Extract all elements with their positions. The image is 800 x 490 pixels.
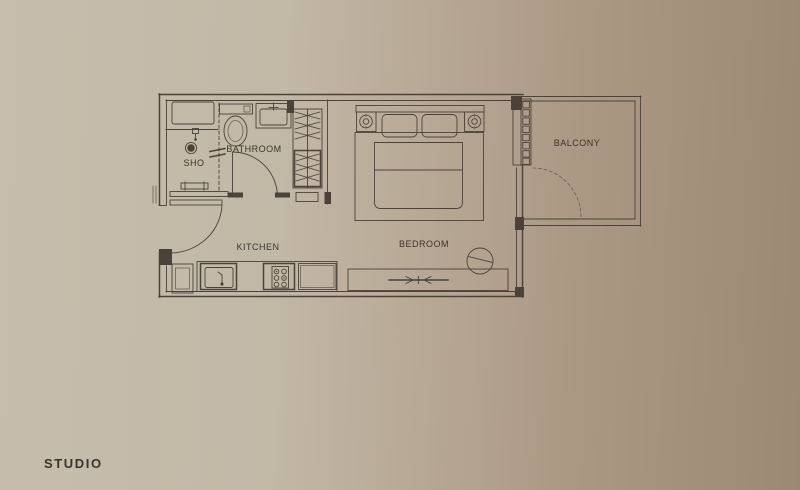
desk — [348, 269, 508, 291]
entry-door — [170, 200, 222, 253]
lamp-icon — [468, 115, 481, 128]
washbasin-icon — [256, 103, 291, 128]
bedroom: BEDROOM — [348, 106, 508, 291]
toilet-icon — [220, 104, 253, 146]
nightstand-right — [465, 112, 485, 132]
wardrobe-shelf — [296, 193, 318, 202]
wall-pier — [325, 192, 332, 204]
floorplan-drawing: SHO BATHROOM — [0, 0, 800, 490]
pillow — [382, 115, 417, 138]
entry-wall-pier — [159, 249, 172, 265]
pillow — [422, 115, 457, 138]
room-label-kitchen: KITCHEN — [236, 242, 279, 252]
door-swing-icon — [170, 203, 222, 253]
page-background: SHO BATHROOM — [0, 0, 800, 490]
wall-pier — [515, 287, 524, 297]
counter-cabinet — [299, 264, 337, 290]
room-label-bathroom: BATHROOM — [226, 144, 281, 154]
headboard — [356, 106, 484, 113]
door-swing-icon — [533, 168, 581, 218]
kitchen-counter — [197, 262, 337, 292]
stove-burners-icon — [264, 264, 295, 290]
shower-wall — [170, 192, 228, 197]
entry-door-leaf — [170, 200, 222, 205]
kitchen-sink-icon — [201, 264, 237, 290]
duvet — [375, 143, 463, 209]
wardrobe — [293, 100, 331, 204]
balcony: BALCONY — [522, 96, 641, 226]
chair-icon — [467, 248, 493, 274]
bathroom: BATHROOM — [210, 103, 291, 198]
kitchen: KITCHEN — [172, 242, 337, 293]
lamp-icon — [360, 115, 373, 128]
nightstand-left — [357, 112, 377, 132]
bathroom-shelf — [172, 102, 214, 124]
room-label-shower: SHO — [183, 158, 204, 168]
room-label-balcony: BALCONY — [554, 138, 601, 148]
room-label-bedroom: BEDROOM — [399, 239, 449, 249]
wall-stub — [228, 193, 243, 198]
door-swing-icon — [233, 152, 278, 197]
plan-type-label: STUDIO — [44, 457, 103, 471]
